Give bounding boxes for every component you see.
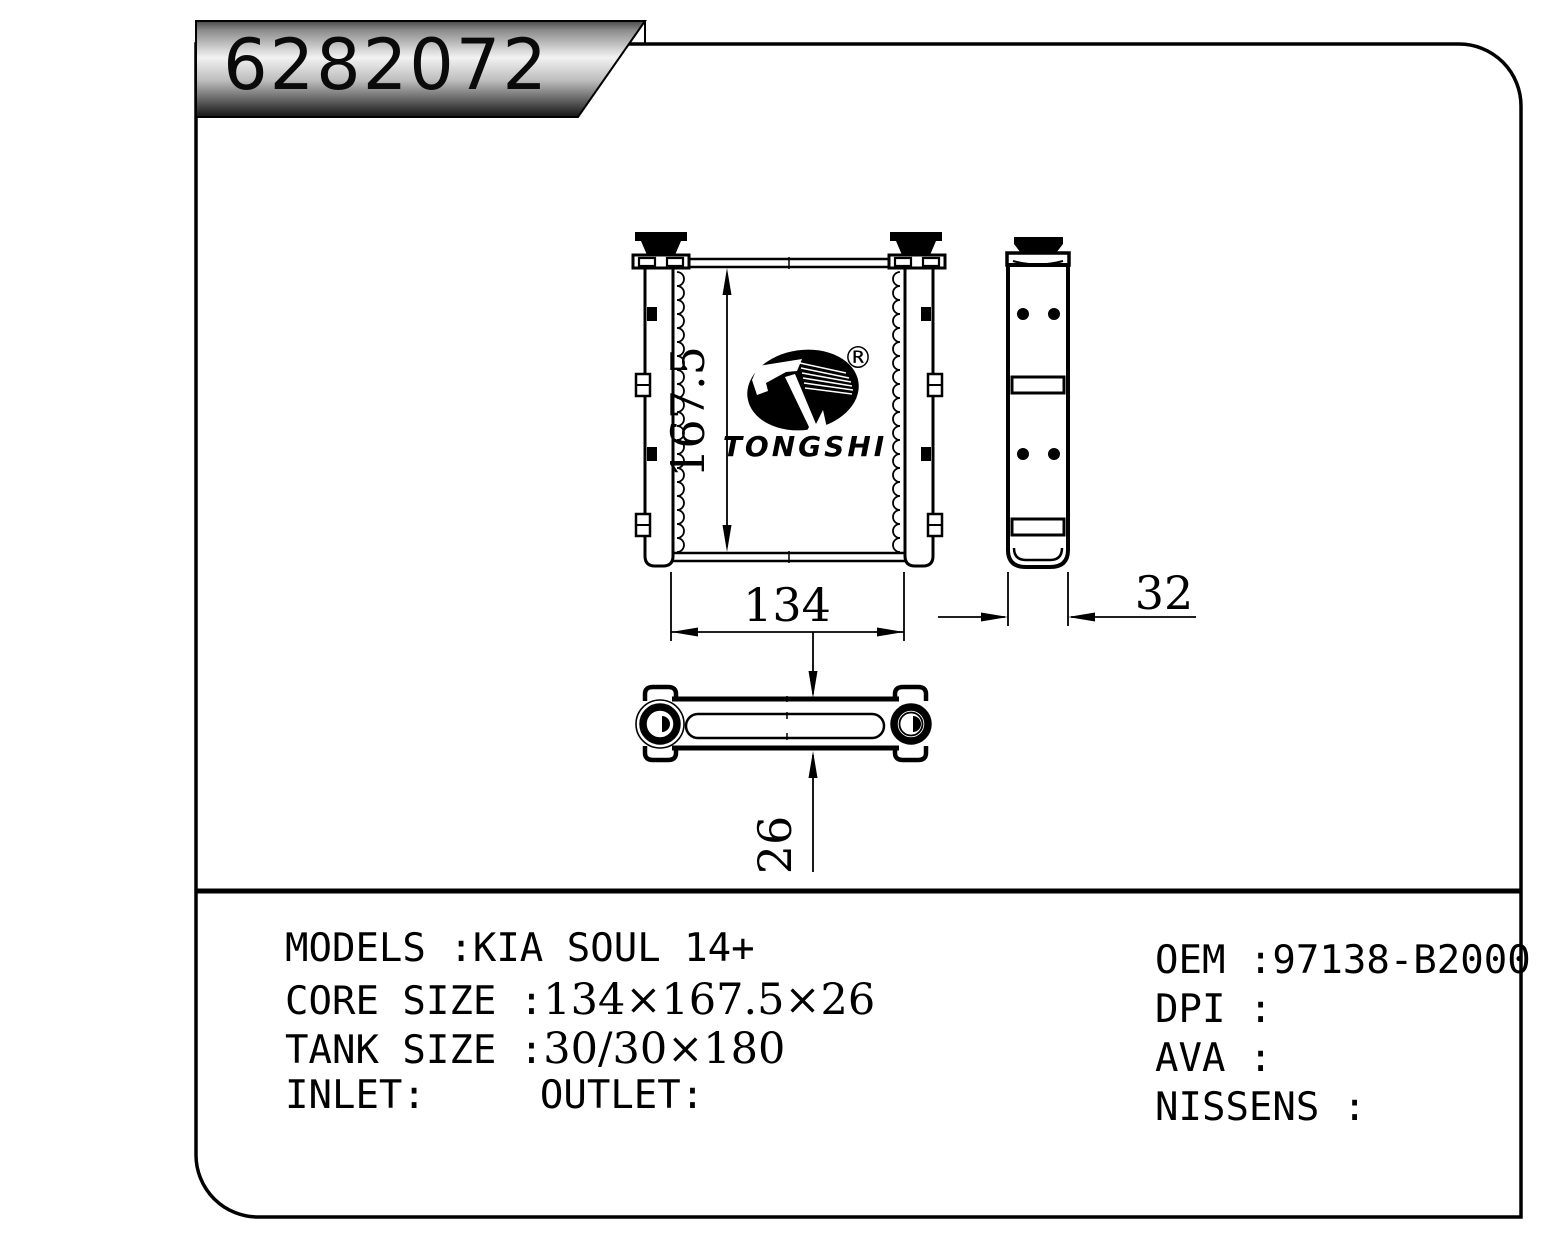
tank-size-label: TANK SIZE : [285, 1028, 543, 1073]
left-tank-upper-clip [647, 307, 657, 321]
dim-core-width: 134 [671, 572, 904, 698]
models-label: MODELS : [285, 926, 473, 971]
dim-depth: 32 [938, 566, 1196, 626]
bottom-view [636, 687, 928, 760]
dim-thickness: 26 [748, 751, 818, 874]
oem-value: 97138-B2000 [1272, 938, 1530, 983]
bottom-view-left-pipe [636, 687, 684, 760]
right-tank-lower-clip [921, 447, 931, 461]
inlet-label: INLET: [285, 1073, 426, 1118]
title-banner: 6282072 [196, 21, 645, 117]
core-size-value: 134×167.5×26 [543, 975, 875, 1025]
dpi-label: DPI : [1155, 987, 1272, 1032]
dim-core-width-value: 134 [743, 578, 831, 632]
registered-trademark-icon: ® [843, 341, 873, 376]
brand-logo: ® TONGSHI [723, 341, 887, 463]
logo-brand-name: TONGSHI [723, 430, 887, 463]
side-view-cap [1014, 237, 1063, 253]
outlet-label: OUTLET: [540, 1073, 704, 1118]
spec-row-nissens: NISSENS : [1155, 1085, 1531, 1134]
models-value: KIA SOUL 14+ [473, 926, 755, 971]
left-pipe-fitting [633, 232, 689, 268]
dim-core-height-value: 167.5 [661, 346, 715, 478]
spec-row-dpi: DPI : [1155, 987, 1531, 1036]
right-tank [905, 268, 942, 566]
spec-block-left: MODELS :KIA SOUL 14+ CORE SIZE :134×167.… [285, 926, 875, 1122]
core-right-fin-edge [893, 272, 900, 552]
spec-row-inlet-outlet: INLET:OUTLET: [285, 1073, 875, 1122]
spec-row-tank-size: TANK SIZE :30/30×180 [285, 1024, 875, 1073]
ava-label: AVA : [1155, 1036, 1272, 1081]
core-size-label: CORE SIZE : [285, 979, 543, 1024]
spec-row-oem: OEM :97138-B2000 [1155, 938, 1531, 987]
nissens-label: NISSENS : [1155, 1085, 1366, 1130]
oem-label: OEM : [1155, 938, 1272, 983]
dim-depth-value: 32 [1135, 566, 1194, 620]
spec-row-core-size: CORE SIZE :134×167.5×26 [285, 975, 875, 1024]
right-pipe-fitting [889, 232, 945, 268]
side-view [1007, 237, 1069, 567]
side-view-upper-band [1012, 377, 1064, 393]
bottom-view-slot [686, 714, 884, 738]
spec-row-ava: AVA : [1155, 1036, 1531, 1085]
side-view-lower-band [1012, 519, 1064, 535]
right-tank-upper-clip [921, 307, 931, 321]
left-tank-lower-clip [647, 447, 657, 461]
drawing-sheet: { "banner": { "part_number": "6282072" }… [0, 0, 1560, 1244]
spec-row-models: MODELS :KIA SOUL 14+ [285, 926, 875, 975]
tank-size-value: 30/30×180 [543, 1024, 785, 1074]
dim-thickness-value: 26 [748, 816, 802, 875]
part-number: 6282072 [223, 24, 549, 106]
spec-block-right: OEM :97138-B2000 DPI : AVA : NISSENS : [1155, 938, 1531, 1134]
bottom-view-right-pipe [894, 687, 928, 760]
